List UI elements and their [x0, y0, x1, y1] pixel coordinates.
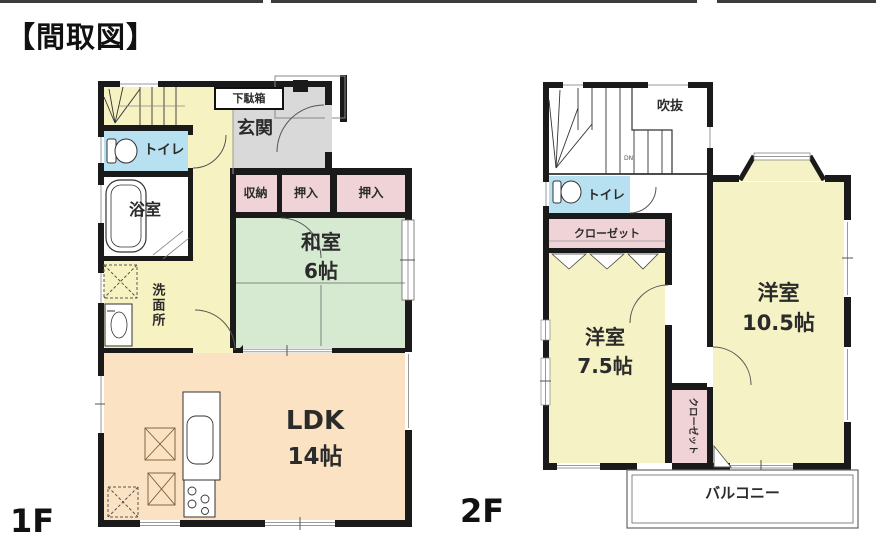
floor-label-2f: 2F: [460, 492, 504, 530]
floor-plan-1f: 下駄箱 玄関 トイレ 浴室 洗面所 収納 押入 押入 和室 6帖 LDK 14帖: [95, 73, 440, 533]
closet-main-label: クローゼット: [549, 220, 665, 247]
washroom-label: 洗面所: [145, 263, 167, 348]
western-room-105-name: 洋室: [742, 278, 815, 308]
storage-label: 収納: [234, 175, 277, 212]
cabinet-icons: [145, 428, 175, 505]
western-room-75-name: 洋室: [577, 323, 632, 352]
oshiire-a-label: 押入: [282, 175, 330, 212]
floor-label-1f: 1F: [10, 502, 54, 540]
floor-plan-2f: DN 吹抜 トイレ クローゼット 洋室 7.5帖 洋室 10.5帖: [540, 80, 876, 532]
top-border-segment: [717, 0, 876, 3]
toilet-label-1f: トイレ: [139, 133, 189, 169]
washer-space-icon: [104, 265, 137, 298]
washitsu-size: 6帖: [301, 257, 341, 286]
toilet-icon-1f: [107, 139, 137, 163]
balcony-label: バルコニー: [627, 483, 858, 505]
western-room-75-label: 洋室 7.5帖: [577, 323, 632, 381]
page-title: 【間取図】: [6, 14, 156, 56]
top-border-segment: [271, 0, 697, 3]
floorplan-page: 【間取図】 1F 2F: [0, 0, 876, 558]
toilet-icon-2f: [553, 181, 581, 203]
sliding-door: [235, 345, 332, 356]
toilet-label-2f: トイレ: [582, 182, 630, 208]
stairs-dn-label: DN: [624, 155, 633, 162]
western-room-105-label: 洋室 10.5帖: [742, 278, 815, 339]
void-label: 吹抜: [640, 96, 700, 118]
ldk-name: LDK: [286, 403, 344, 441]
ldk-size: 14帖: [286, 441, 344, 474]
shoe-cabinet-label: 下駄箱: [214, 87, 284, 110]
stairs-1f-treads: [104, 87, 185, 125]
tatami-lines: [236, 283, 405, 346]
top-border-segment: [0, 0, 263, 3]
washitsu-label: 和室 6帖: [301, 228, 341, 286]
ldk-label: LDK 14帖: [286, 403, 344, 474]
closet-door-triangles: [552, 254, 658, 269]
kitchen-counter-icon: [183, 392, 220, 517]
washitsu-name: 和室: [301, 228, 341, 257]
oshiire-b-label: 押入: [337, 173, 405, 213]
closet-side-label: クローゼット: [685, 390, 699, 462]
equipment-space-icon: [108, 487, 138, 517]
western-room-75-size: 7.5帖: [577, 352, 632, 381]
bath-label: 浴室: [117, 199, 173, 221]
sink-icon: [105, 304, 132, 346]
western-room-105-size: 10.5帖: [742, 308, 815, 338]
genkan-label: 玄関: [225, 117, 285, 141]
